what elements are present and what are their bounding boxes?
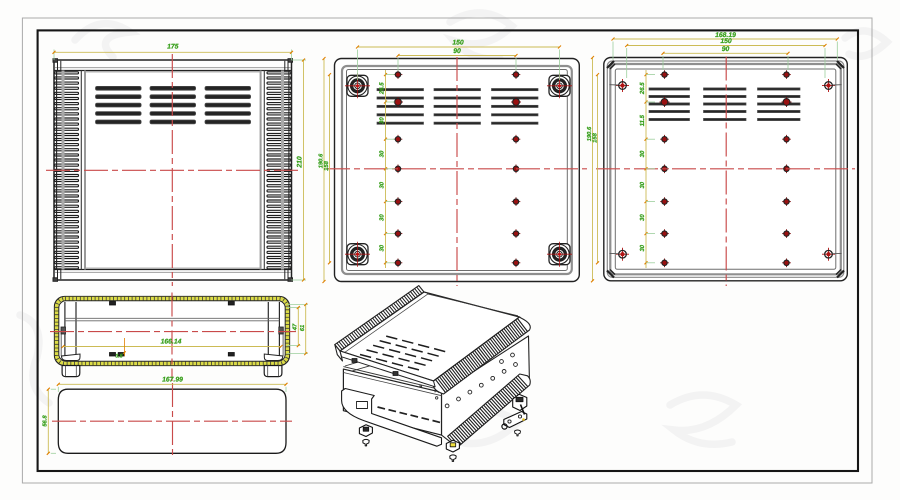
svg-text:30: 30 [639, 244, 646, 251]
svg-text:30: 30 [378, 244, 385, 251]
svg-text:90: 90 [722, 46, 730, 53]
svg-text:11.5: 11.5 [639, 114, 646, 126]
svg-text:158: 158 [323, 160, 330, 170]
svg-text:30: 30 [378, 117, 385, 124]
svg-text:30: 30 [639, 150, 646, 157]
svg-text:166.14: 166.14 [161, 339, 182, 346]
svg-text:3.5: 3.5 [115, 354, 122, 360]
svg-text:175: 175 [167, 44, 179, 51]
svg-text:90: 90 [453, 48, 461, 55]
svg-text:30: 30 [378, 150, 385, 157]
svg-text:150: 150 [720, 38, 732, 45]
svg-text:158: 158 [592, 132, 599, 142]
svg-text:56.8: 56.8 [42, 415, 49, 427]
svg-text:167.99: 167.99 [162, 377, 183, 384]
svg-text:26.5: 26.5 [378, 82, 385, 95]
svg-text:150: 150 [452, 40, 464, 47]
svg-text:47: 47 [293, 323, 299, 331]
svg-text:26.5: 26.5 [639, 82, 646, 95]
svg-text:210: 210 [297, 156, 304, 169]
svg-text:30: 30 [639, 181, 646, 188]
svg-text:61: 61 [299, 325, 306, 331]
svg-text:30: 30 [378, 214, 385, 221]
svg-text:30: 30 [639, 214, 646, 221]
svg-text:30: 30 [378, 181, 385, 188]
